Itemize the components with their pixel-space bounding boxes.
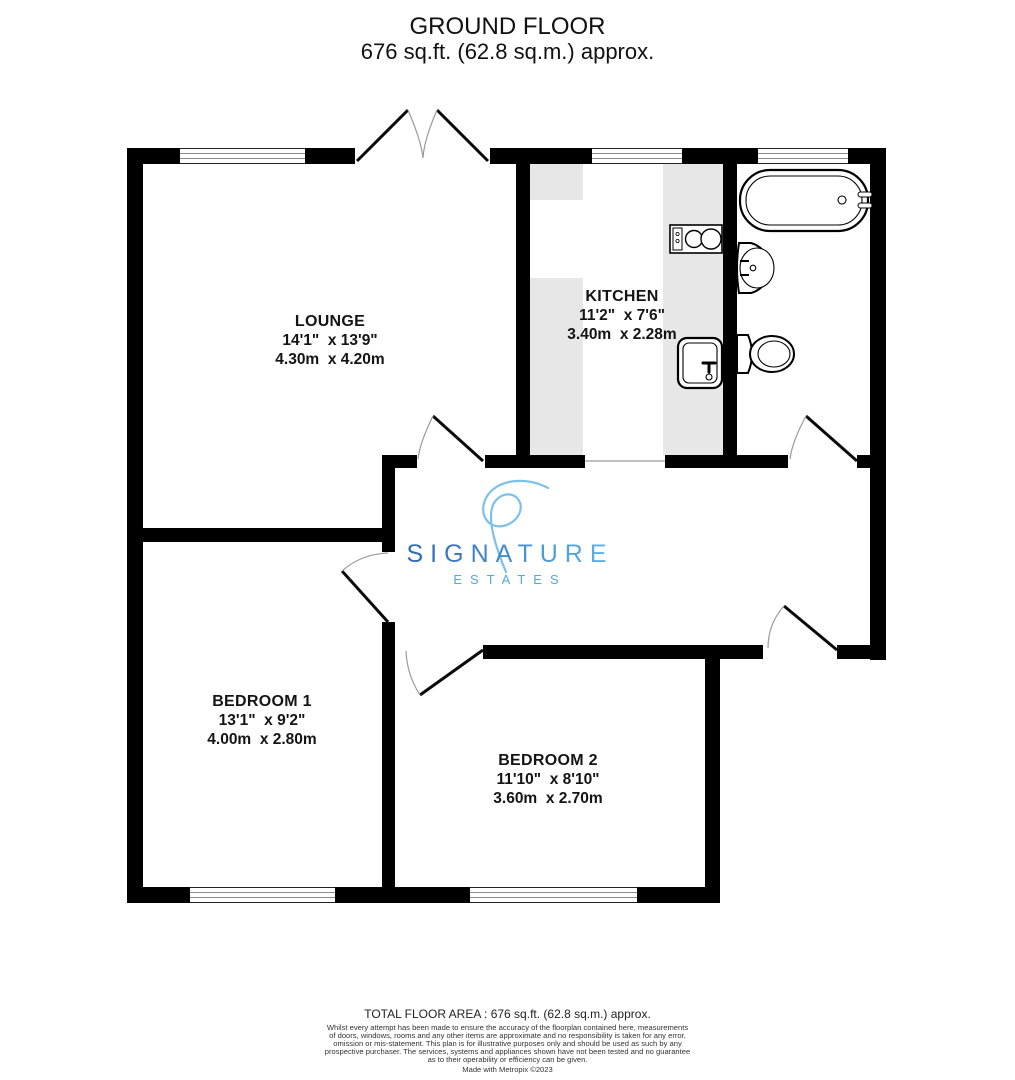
bedroom1-label: BEDROOM 1 13'1" x 9'2" 4.00m x 2.80m bbox=[152, 692, 372, 749]
bedroom2-dims-metric: 3.60m x 2.70m bbox=[438, 789, 658, 808]
lounge-label: LOUNGE 14'1" x 13'9" 4.30m x 4.20m bbox=[220, 312, 440, 369]
kitchen-dims-metric: 3.40m x 2.28m bbox=[512, 325, 732, 344]
bedroom2-label: BEDROOM 2 11'10" x 8'10" 3.60m x 2.70m bbox=[438, 751, 658, 808]
kitchen-label: KITCHEN 11'2" x 7'6" 3.40m x 2.28m bbox=[512, 287, 732, 344]
bedroom2-dims-imperial: 11'10" x 8'10" bbox=[438, 770, 658, 789]
lounge-dims-imperial: 14'1" x 13'9" bbox=[220, 331, 440, 350]
bedroom1-dims-imperial: 13'1" x 9'2" bbox=[152, 711, 372, 730]
french-doors bbox=[357, 110, 488, 161]
front-door bbox=[768, 606, 837, 650]
bathroom-door bbox=[790, 416, 857, 461]
disclaimer-line: as to their operability or efficiency ca… bbox=[0, 1056, 1015, 1064]
bedroom2-door bbox=[406, 650, 483, 695]
bathtub-icon bbox=[740, 170, 872, 231]
metropix-credit: Made with Metropix ©2023 bbox=[0, 1065, 1015, 1074]
bedroom1-name: BEDROOM 1 bbox=[152, 692, 372, 711]
total-floor-area: TOTAL FLOOR AREA : 676 sq.ft. (62.8 sq.m… bbox=[0, 1007, 1015, 1021]
lounge-name: LOUNGE bbox=[220, 312, 440, 331]
lounge-door bbox=[418, 416, 483, 461]
bedroom2-name: BEDROOM 2 bbox=[438, 751, 658, 770]
brand-logo: SIGNATURE ESTATES bbox=[400, 476, 620, 594]
logo-sub-text: ESTATES bbox=[400, 572, 620, 587]
hob-icon bbox=[670, 225, 722, 253]
lounge-dims-metric: 4.30m x 4.20m bbox=[220, 350, 440, 369]
kitchen-dims-imperial: 11'2" x 7'6" bbox=[512, 306, 732, 325]
toilet-icon bbox=[737, 335, 794, 373]
bedroom1-door bbox=[342, 553, 388, 622]
kitchen-name: KITCHEN bbox=[512, 287, 732, 306]
kitchen-sink-icon bbox=[678, 338, 722, 388]
floorplan-page: { "header": { "title": "GROUND FLOOR", "… bbox=[0, 0, 1015, 1080]
basin-icon bbox=[737, 243, 774, 293]
footer: TOTAL FLOOR AREA : 676 sq.ft. (62.8 sq.m… bbox=[0, 1007, 1015, 1074]
logo-brand-text: SIGNATURE bbox=[400, 540, 620, 569]
bedroom1-dims-metric: 4.00m x 2.80m bbox=[152, 730, 372, 749]
